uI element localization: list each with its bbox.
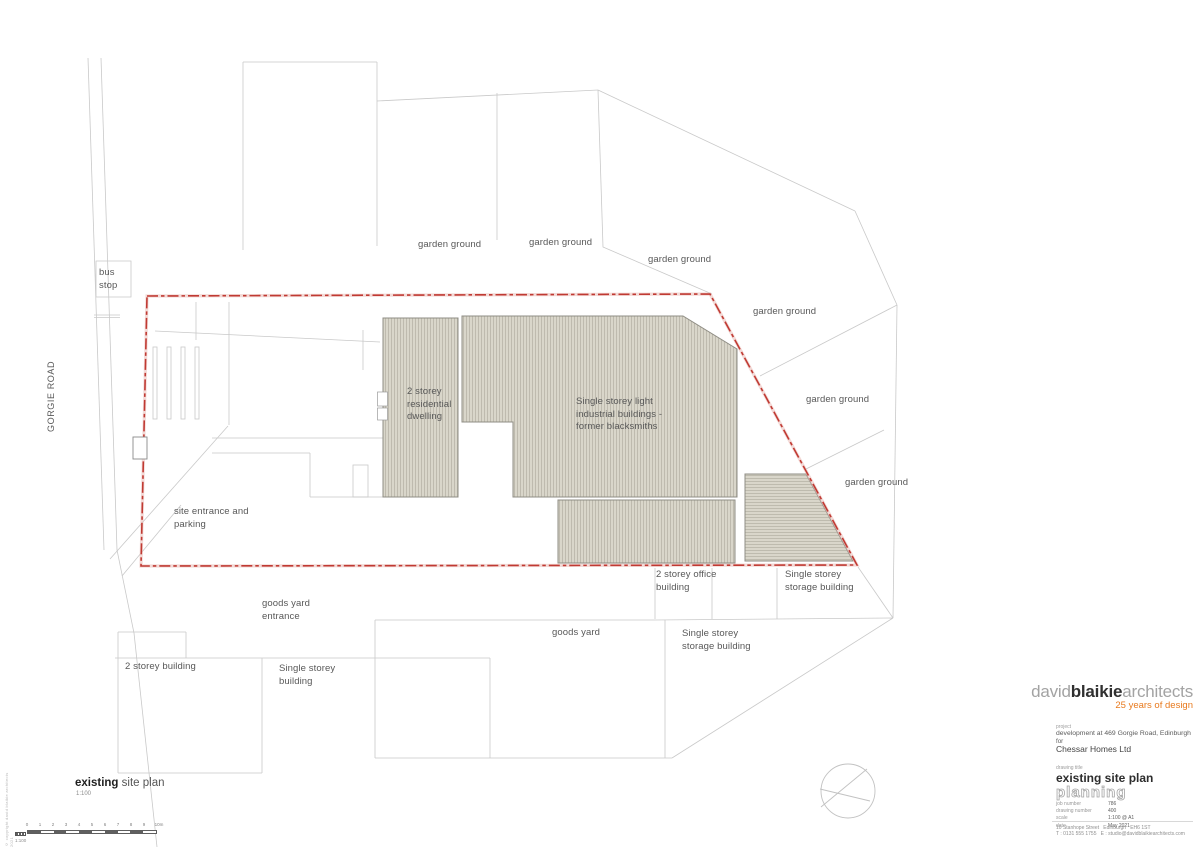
field-value: 786 xyxy=(1108,801,1134,807)
drawing-stage: planning xyxy=(1056,784,1127,801)
garden-ground-label: garden ground xyxy=(418,239,481,252)
scalebar-tick: 2 xyxy=(47,822,59,827)
client-name: Chessar Homes Ltd xyxy=(1056,744,1131,754)
industrial-label: Single storey light industrial buildings… xyxy=(576,396,676,434)
garden-ground-label: garden ground xyxy=(529,237,592,250)
scalebar-tick: 3 xyxy=(60,822,72,827)
firm-tagline: 25 years of design xyxy=(1000,700,1193,711)
garden-ground-label: garden ground xyxy=(845,477,908,490)
single-storey-building-label: Single storey building xyxy=(279,663,347,688)
scalebar-tick: 7 xyxy=(112,822,124,827)
scalebar-tick: 8 xyxy=(125,822,137,827)
drawing-sheet: GORGIE ROAD bus stop garden ground garde… xyxy=(0,0,1200,847)
road-label: GORGIE ROAD xyxy=(46,361,58,432)
scalebar-tick: 9 xyxy=(138,822,150,827)
garden-ground-label: garden ground xyxy=(806,394,869,407)
scalebar-tick: 1 xyxy=(34,822,46,827)
garden-ground-label: garden ground xyxy=(753,306,816,319)
building-storage xyxy=(745,474,853,561)
two-storey-building-label: 2 storey building xyxy=(125,661,196,674)
scalebar-tick: 6 xyxy=(99,822,111,827)
goods-yard-label: goods yard xyxy=(552,627,600,640)
goods-yard-entrance-label: goods yard entrance xyxy=(262,598,324,623)
firm-name-part3: architects xyxy=(1122,682,1193,701)
project-name: development at 469 Gorgie Road, Edinburg… xyxy=(1056,730,1191,737)
building-industrial-annex xyxy=(558,500,735,563)
garden-ground-label: garden ground xyxy=(648,254,711,267)
scalebar-tick: 5 xyxy=(86,822,98,827)
north-symbol-icon xyxy=(820,764,875,818)
drawing-caption: existing site plan xyxy=(75,777,165,789)
residential-label: 2 storey residential dwelling xyxy=(407,386,465,424)
field-label: drawing number xyxy=(1056,808,1108,814)
site-entrance-label: site entrance and parking xyxy=(174,506,250,531)
scalebar-tick: 0 xyxy=(21,822,33,827)
porch-detail xyxy=(378,408,388,420)
buildings xyxy=(378,316,854,563)
drawing-caption-scale: 1:100 xyxy=(76,791,91,797)
storage-building-label: Single storey storage building xyxy=(682,628,767,653)
bus-stop-label: bus stop xyxy=(99,267,127,292)
firm-name: davidblaikiearchitects xyxy=(1000,682,1193,702)
copyright-note: © copyright david blaikie architects 202… xyxy=(4,762,14,847)
scalebar-scale-label: 1:100 xyxy=(15,838,26,843)
firm-name-part2: blaikie xyxy=(1071,682,1123,701)
firm-name-part1: david xyxy=(1031,682,1071,701)
scalebar xyxy=(27,830,157,834)
drawing-title: existing site plan xyxy=(1056,771,1153,785)
site-entrance-gate xyxy=(133,437,147,459)
drawing-caption-rest: site plan xyxy=(118,777,164,789)
porch-detail xyxy=(378,392,388,406)
office-building-label: 2 storey office building xyxy=(656,569,736,594)
scalebar-tick: 4 xyxy=(73,822,85,827)
storage-building-label: Single storey storage building xyxy=(785,569,860,594)
titleblock-divider xyxy=(1052,821,1193,822)
scalebar-tick: 10m xyxy=(151,822,167,827)
field-value: 400 xyxy=(1108,808,1134,814)
field-label: job number xyxy=(1056,801,1108,807)
firm-contact: T : 0131 555 1755 E : studio@davidblaiki… xyxy=(1056,831,1185,837)
survey-linework xyxy=(88,58,897,847)
drawing-caption-bold: existing xyxy=(75,777,118,789)
scalebar-subdivision xyxy=(15,832,26,836)
